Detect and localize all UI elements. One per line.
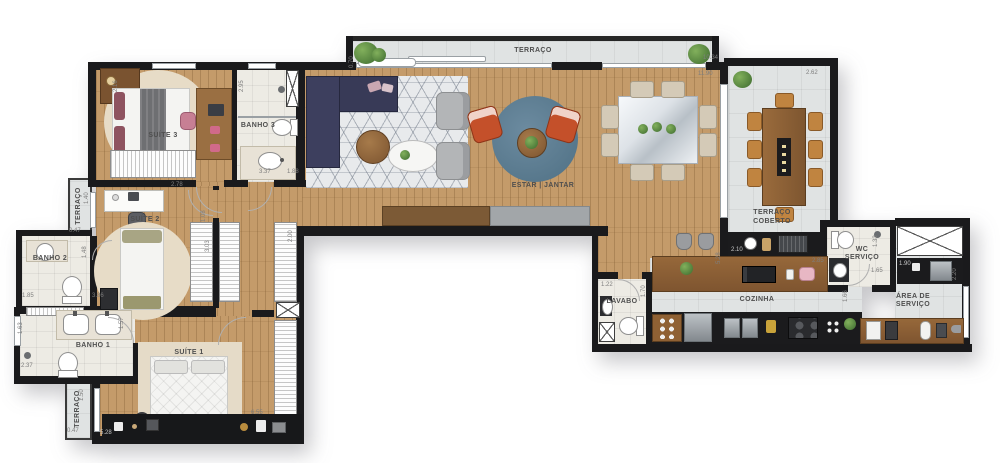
- cooktop-icon: [742, 266, 776, 283]
- wall: [296, 236, 304, 442]
- shaft-box: [276, 302, 300, 318]
- decor-icon: [210, 126, 220, 134]
- table-plates: [782, 142, 786, 172]
- dimension-label: 5.28: [716, 252, 722, 264]
- room-label-banho-2: BANHO 2: [33, 255, 67, 263]
- armchair: [436, 92, 470, 130]
- dimension-label: 1.22: [601, 282, 613, 288]
- room-label-cozinha: COZINHA: [740, 296, 775, 304]
- laptop-icon: [208, 104, 224, 116]
- outdoor-chair: [747, 140, 762, 159]
- dimension-label: 11.90: [698, 71, 713, 77]
- room-label-terraco-top: TERRAÇO: [514, 47, 551, 55]
- media-console: [382, 206, 490, 226]
- room-label-area-servico-1: ÁREA DE: [896, 293, 930, 301]
- dining-chair: [699, 133, 717, 157]
- toilet-tank: [62, 296, 82, 304]
- pillow: [154, 360, 188, 374]
- dimension-label: 5.28: [100, 430, 112, 436]
- wall: [642, 272, 652, 279]
- dimension-label: 1.90: [899, 261, 911, 267]
- double-sink: [742, 318, 758, 338]
- wardrobe: [110, 150, 196, 178]
- floor-plan-drawing: TERRAÇO ESTAR | JANTAR TERRAÇO COBERTO S…: [0, 0, 1000, 463]
- dimension-label: 0.70: [349, 56, 355, 68]
- sink-basin: [258, 152, 282, 170]
- bar-stool: [676, 233, 692, 250]
- plant-icon: [680, 262, 693, 275]
- shaft-box: [599, 322, 615, 342]
- plant-icon: [400, 150, 410, 160]
- dining-chair: [601, 105, 619, 129]
- stove-icon: [788, 317, 818, 339]
- decor-icon: [210, 144, 220, 152]
- dish-towel: [766, 320, 776, 333]
- armchair: [436, 142, 470, 180]
- plant-icon: [638, 124, 648, 134]
- cutting-board-icon: [762, 238, 771, 251]
- room-label-banho-3: BANHO 3: [241, 122, 275, 130]
- wall: [724, 58, 838, 66]
- media-console: [490, 206, 590, 226]
- dimension-label: 1.65: [871, 268, 883, 274]
- dimension-label: 2.10: [731, 247, 743, 253]
- nightstand: [100, 288, 118, 310]
- dimension-label: 2.95: [239, 80, 245, 92]
- floor-plan: TERRAÇO ESTAR | JANTAR TERRAÇO COBERTO S…: [0, 0, 1000, 463]
- sink-basin: [63, 314, 89, 335]
- plant-icon: [733, 71, 752, 88]
- console-item: [132, 424, 137, 429]
- dimension-label: 2.16: [113, 80, 119, 92]
- closet: [219, 222, 240, 302]
- burner-knobs: [826, 320, 840, 334]
- closet: [190, 222, 213, 302]
- sink-basin: [833, 263, 847, 278]
- plant-icon: [372, 48, 386, 62]
- water-heater-icon: [920, 321, 931, 340]
- room-label-estar-jantar: ESTAR | JANTAR: [512, 182, 575, 190]
- wall: [872, 285, 896, 292]
- shaft-box: [286, 70, 299, 107]
- dimension-label: 1.88: [287, 169, 299, 175]
- decor-icon: [128, 192, 139, 201]
- iron-icon: [951, 325, 961, 333]
- dimension-label: 6.55: [251, 410, 263, 416]
- room-label-suite-1: SUÍTE 1: [174, 349, 203, 357]
- outdoor-chair: [808, 140, 823, 159]
- dishwasher: [684, 313, 712, 342]
- dining-chair: [661, 81, 685, 98]
- room-label-wc-servico-1: WC: [856, 246, 868, 254]
- shower-glass-line: [238, 116, 296, 118]
- window: [248, 63, 276, 69]
- sliding-door-glass: [602, 63, 706, 68]
- wall: [224, 180, 248, 187]
- wall: [895, 218, 970, 226]
- toilet-tank: [58, 370, 78, 378]
- dimension-label: 0.47: [69, 228, 81, 234]
- desk-chair: [180, 112, 196, 130]
- wall: [890, 220, 896, 285]
- dining-chair: [601, 133, 619, 157]
- console-item: [256, 420, 266, 432]
- shower-head-icon: [24, 352, 31, 359]
- dimension-label: 1.50: [79, 389, 85, 401]
- pillow: [114, 92, 125, 120]
- dining-chair: [661, 164, 685, 181]
- sofa-chaise: [306, 76, 340, 168]
- dimension-label: 3.03: [205, 240, 211, 252]
- wall: [274, 180, 308, 187]
- wall: [592, 272, 618, 279]
- room-label-wc-servico-2: SERVIÇO: [845, 254, 879, 262]
- terrace-door-glass: [94, 388, 100, 432]
- wall: [820, 220, 896, 227]
- window: [152, 63, 196, 69]
- cabinet-knobs: [658, 317, 676, 339]
- plant-icon: [844, 318, 856, 330]
- console-item: [114, 422, 123, 431]
- terrace-door-glass: [90, 192, 96, 228]
- dimension-label: 2.78: [171, 182, 183, 188]
- coffee-table-round: [356, 130, 390, 164]
- dimension-label: 2.20: [952, 268, 958, 280]
- dimension-label: 1.40: [84, 192, 90, 204]
- skylight-box: [897, 226, 963, 256]
- dimension-label: 2.00: [288, 230, 294, 242]
- plant-icon: [525, 136, 538, 149]
- closet: [274, 320, 297, 416]
- dimension-label: 10.34: [703, 55, 718, 61]
- faucet-icon: [105, 311, 109, 316]
- dimension-label: 1.85: [22, 293, 34, 299]
- room-label-terraco-mid: TERRAÇO: [75, 187, 83, 224]
- toilet-bowl: [619, 317, 638, 335]
- room-label-banho-1: BANHO 1: [76, 342, 110, 350]
- dryer-icon: [885, 321, 898, 340]
- wall: [296, 62, 356, 70]
- dining-chair: [630, 81, 654, 98]
- faucet-icon: [280, 158, 284, 162]
- grill-icon: [778, 235, 808, 253]
- outdoor-chair: [808, 168, 823, 187]
- outdoor-chair: [747, 168, 762, 187]
- wall: [232, 70, 237, 182]
- pillow: [122, 230, 162, 243]
- wall: [88, 62, 96, 186]
- room-label-terraco-coberto-2: COBERTO: [753, 218, 791, 226]
- room-label-terraco-coberto-1: TERRAÇO: [753, 209, 790, 217]
- double-sink: [724, 318, 740, 338]
- counter-sink-icon: [744, 237, 757, 250]
- terrace-door-glass: [720, 84, 728, 218]
- room-label-suite-3: SUÍTE 3: [148, 132, 177, 140]
- outdoor-chair: [808, 112, 823, 131]
- mixer-icon: [799, 267, 815, 281]
- wall: [16, 230, 22, 314]
- wall: [346, 36, 718, 41]
- appliance-icon: [936, 323, 947, 338]
- wall: [830, 58, 838, 226]
- plant-icon: [688, 44, 710, 64]
- laundry-sink: [930, 261, 952, 281]
- decor-icon: [112, 194, 119, 201]
- room-label-area-servico-2: SERVIÇO: [896, 301, 930, 309]
- dining-chair: [630, 164, 654, 181]
- wall: [592, 236, 598, 348]
- outdoor-chair: [747, 112, 762, 131]
- wall: [552, 62, 602, 70]
- dimension-label: 1.48: [82, 246, 88, 258]
- dimension-label: 1.33: [873, 235, 879, 247]
- room-label-suite-2: SUÍTE 2: [130, 216, 159, 224]
- dimension-label: 1.70: [641, 285, 647, 297]
- shower-head-icon: [278, 86, 285, 93]
- plant-icon: [666, 124, 676, 134]
- pillow: [191, 360, 225, 374]
- toilet-bowl: [837, 231, 854, 249]
- dimension-label: 3.86: [92, 293, 104, 299]
- dimension-label: 0.47: [67, 428, 79, 434]
- plant-icon: [652, 122, 662, 132]
- outdoor-chair: [775, 93, 794, 108]
- dimension-label: 1.66: [843, 290, 849, 302]
- wall: [296, 226, 608, 236]
- console-item: [146, 419, 159, 431]
- coffee-table-oval: [388, 140, 438, 172]
- decor-icon: [786, 269, 794, 280]
- dimension-label: 1.08: [201, 210, 207, 222]
- bed-bench: [123, 296, 161, 309]
- wall: [592, 344, 972, 352]
- dimension-label: 2.85: [812, 258, 824, 264]
- dimension-label: 2.37: [21, 363, 33, 369]
- bar-stool: [698, 233, 714, 250]
- open-door-panel: [408, 56, 486, 62]
- dining-chair: [699, 105, 717, 129]
- toilet-bowl: [62, 276, 82, 298]
- dimension-label: 2.62: [806, 70, 818, 76]
- dimension-label: 3.37: [259, 169, 271, 175]
- dimension-label: 1.57: [119, 317, 125, 329]
- wall: [252, 310, 274, 317]
- dimension-label: 1.63: [18, 322, 24, 334]
- console-item: [240, 423, 248, 431]
- decor-icon: [912, 263, 920, 271]
- room-label-lavabo: LAVABO: [607, 298, 638, 306]
- washer-icon: [866, 321, 881, 340]
- console-item: [272, 422, 286, 433]
- faucet-icon: [73, 311, 77, 316]
